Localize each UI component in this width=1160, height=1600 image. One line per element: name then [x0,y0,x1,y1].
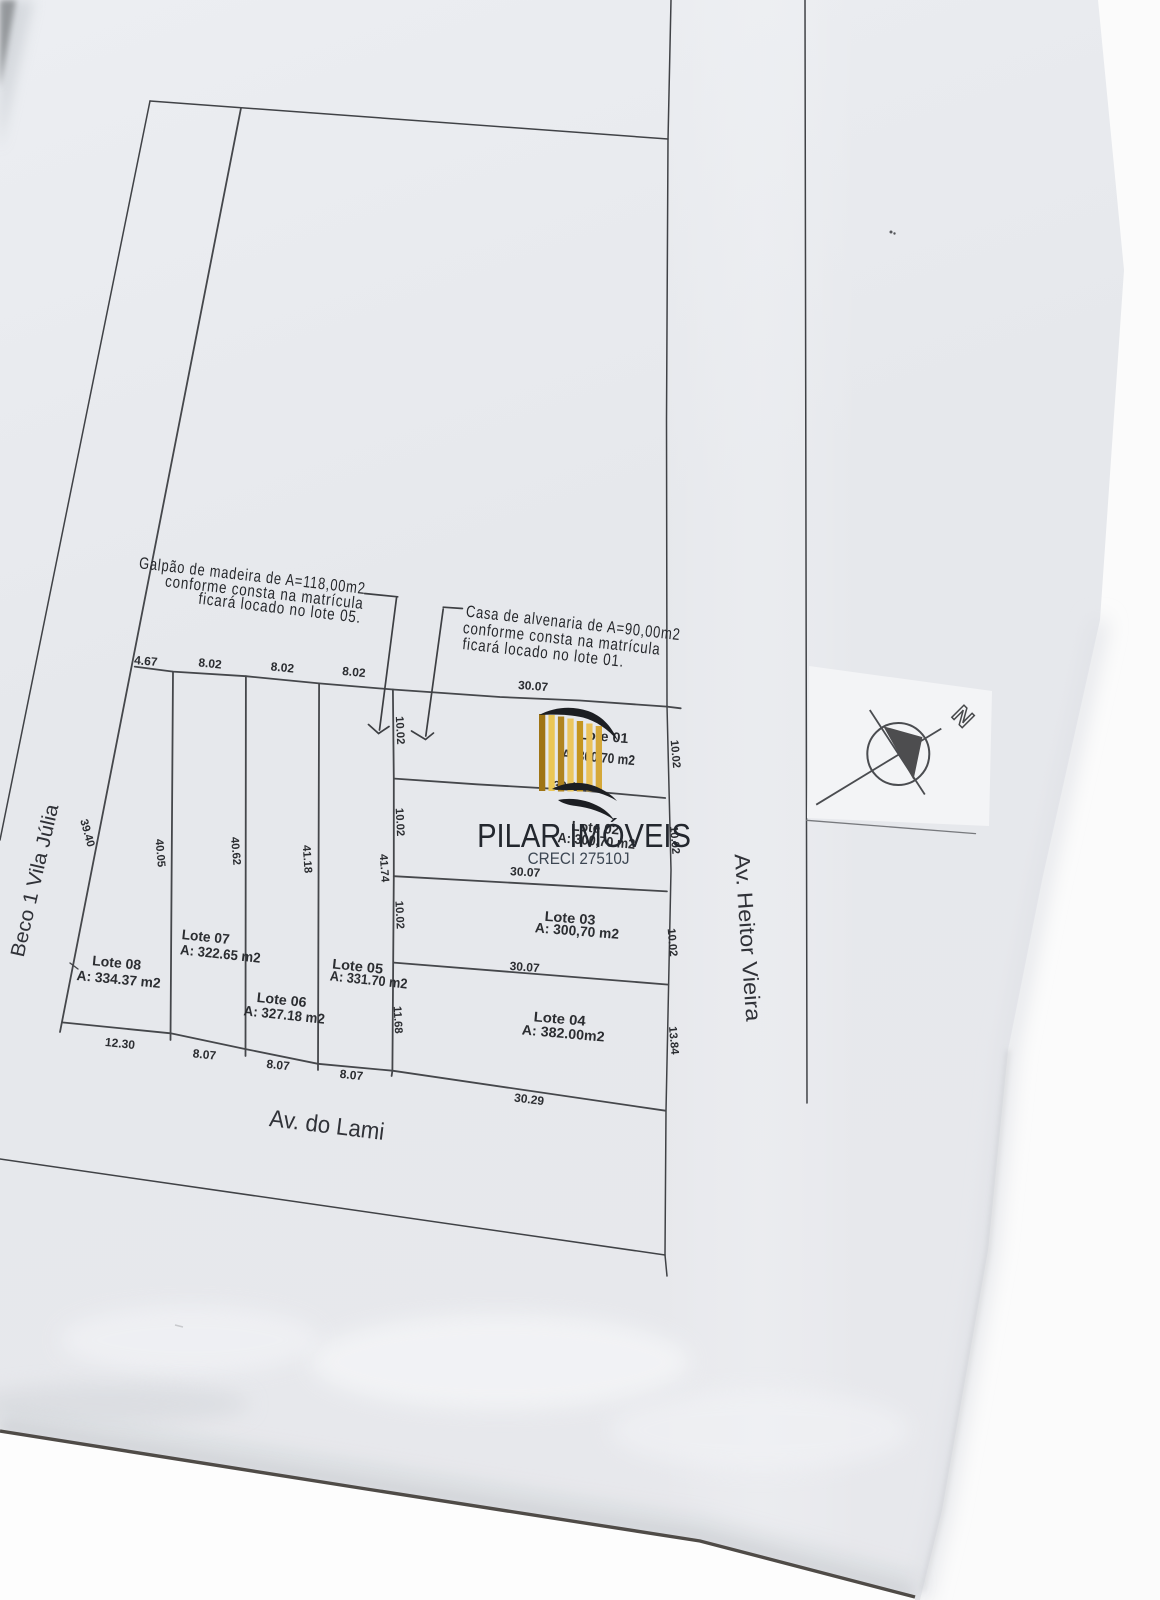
svg-text:41.74: 41.74 [377,854,391,884]
svg-text:10.02: 10.02 [393,716,406,745]
svg-text:8.02: 8.02 [198,655,223,671]
svg-text:8.07: 8.07 [192,1046,217,1062]
svg-text:13.84: 13.84 [666,1026,680,1056]
svg-text:40.05: 40.05 [152,838,166,867]
svg-text:10.02: 10.02 [392,901,405,930]
svg-text:8.07: 8.07 [339,1067,364,1083]
svg-text:10.02: 10.02 [393,808,406,837]
svg-text:CRECI 27510J: CRECI 27510J [528,849,630,868]
svg-text:40.62: 40.62 [228,836,242,865]
svg-text:10.02: 10.02 [668,739,682,768]
svg-text:41.18: 41.18 [300,845,314,874]
svg-text:4.67: 4.67 [134,653,159,669]
svg-text:8.02: 8.02 [342,664,367,680]
svg-text:30.07: 30.07 [518,678,549,694]
svg-text:8.02: 8.02 [270,659,295,675]
svg-text:8.07: 8.07 [266,1057,291,1073]
svg-text:10.02: 10.02 [665,928,679,957]
svg-text:30.07: 30.07 [509,959,540,975]
svg-text:11.68: 11.68 [391,1006,404,1034]
